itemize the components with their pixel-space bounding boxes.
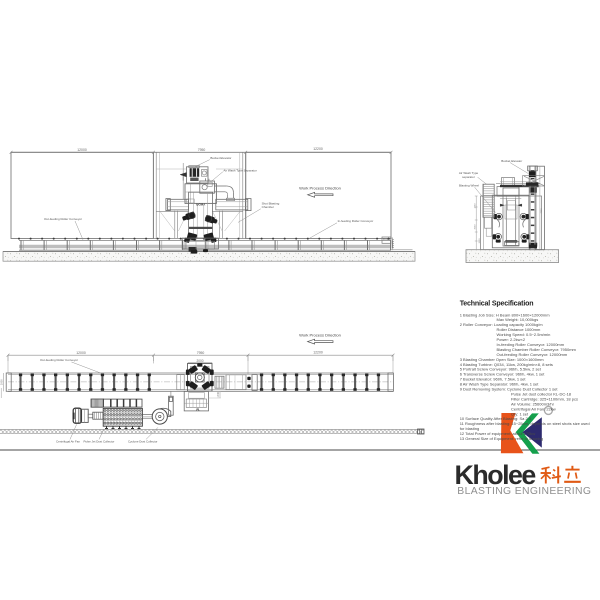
svg-text:1000: 1000 — [0, 379, 4, 385]
svg-text:QGMA: QGMA — [196, 203, 206, 207]
svg-text:7300: 7300 — [541, 208, 543, 214]
svg-text:1750: 1750 — [475, 203, 477, 209]
svg-text:1350: 1350 — [479, 238, 481, 244]
svg-text:(0.000): (0.000) — [383, 239, 391, 241]
svg-text:Work Process Direction: Work Process Direction — [299, 333, 341, 338]
svg-text:Blasting Wheel: Blasting Wheel — [459, 184, 479, 188]
svg-text:12000: 12000 — [77, 148, 87, 152]
svg-text:Centrifugal Air Fan: Centrifugal Air Fan — [56, 439, 80, 443]
svg-text:1700: 1700 — [217, 391, 220, 397]
svg-text:Pulse Jet Dust Collector: Pulse Jet Dust Collector — [84, 439, 115, 443]
svg-text:In-feeding Roller Conveyor: In-feeding Roller Conveyor — [338, 219, 374, 223]
svg-text:Out-feeding Roller Conveyor: Out-feeding Roller Conveyor — [44, 217, 82, 221]
svg-text:12200: 12200 — [313, 350, 323, 354]
svg-text:FL: FL — [196, 408, 200, 412]
svg-text:7950: 7950 — [197, 351, 205, 355]
svg-text:Out-feeding Roller Conveyor: Out-feeding Roller Conveyor — [40, 358, 78, 362]
svg-text:BLASTING ENGINEERING: BLASTING ENGINEERING — [457, 486, 591, 497]
svg-text:Technical Specification: Technical Specification — [460, 301, 534, 308]
svg-text:separator: separator — [462, 175, 475, 179]
svg-text:Bucket Elevator: Bucket Elevator — [210, 156, 231, 160]
svg-text:12200: 12200 — [313, 147, 323, 151]
svg-text:7950: 7950 — [198, 148, 206, 152]
svg-text:Cyclone Dust Collector: Cyclone Dust Collector — [128, 439, 157, 443]
svg-text:Bucket Elevator: Bucket Elevator — [501, 159, 522, 163]
svg-text:12000: 12000 — [76, 351, 86, 355]
svg-text:Chamber: Chamber — [262, 205, 274, 209]
svg-text:13 General Size of Equipment:: 13 General Size of Equipment: refer to d… — [460, 436, 543, 441]
svg-text:2000: 2000 — [196, 359, 203, 363]
svg-text:3550: 3550 — [475, 224, 477, 230]
svg-text:Air Wash Type Separator: Air Wash Type Separator — [223, 168, 256, 172]
svg-text:Work Process Direction: Work Process Direction — [299, 186, 341, 191]
